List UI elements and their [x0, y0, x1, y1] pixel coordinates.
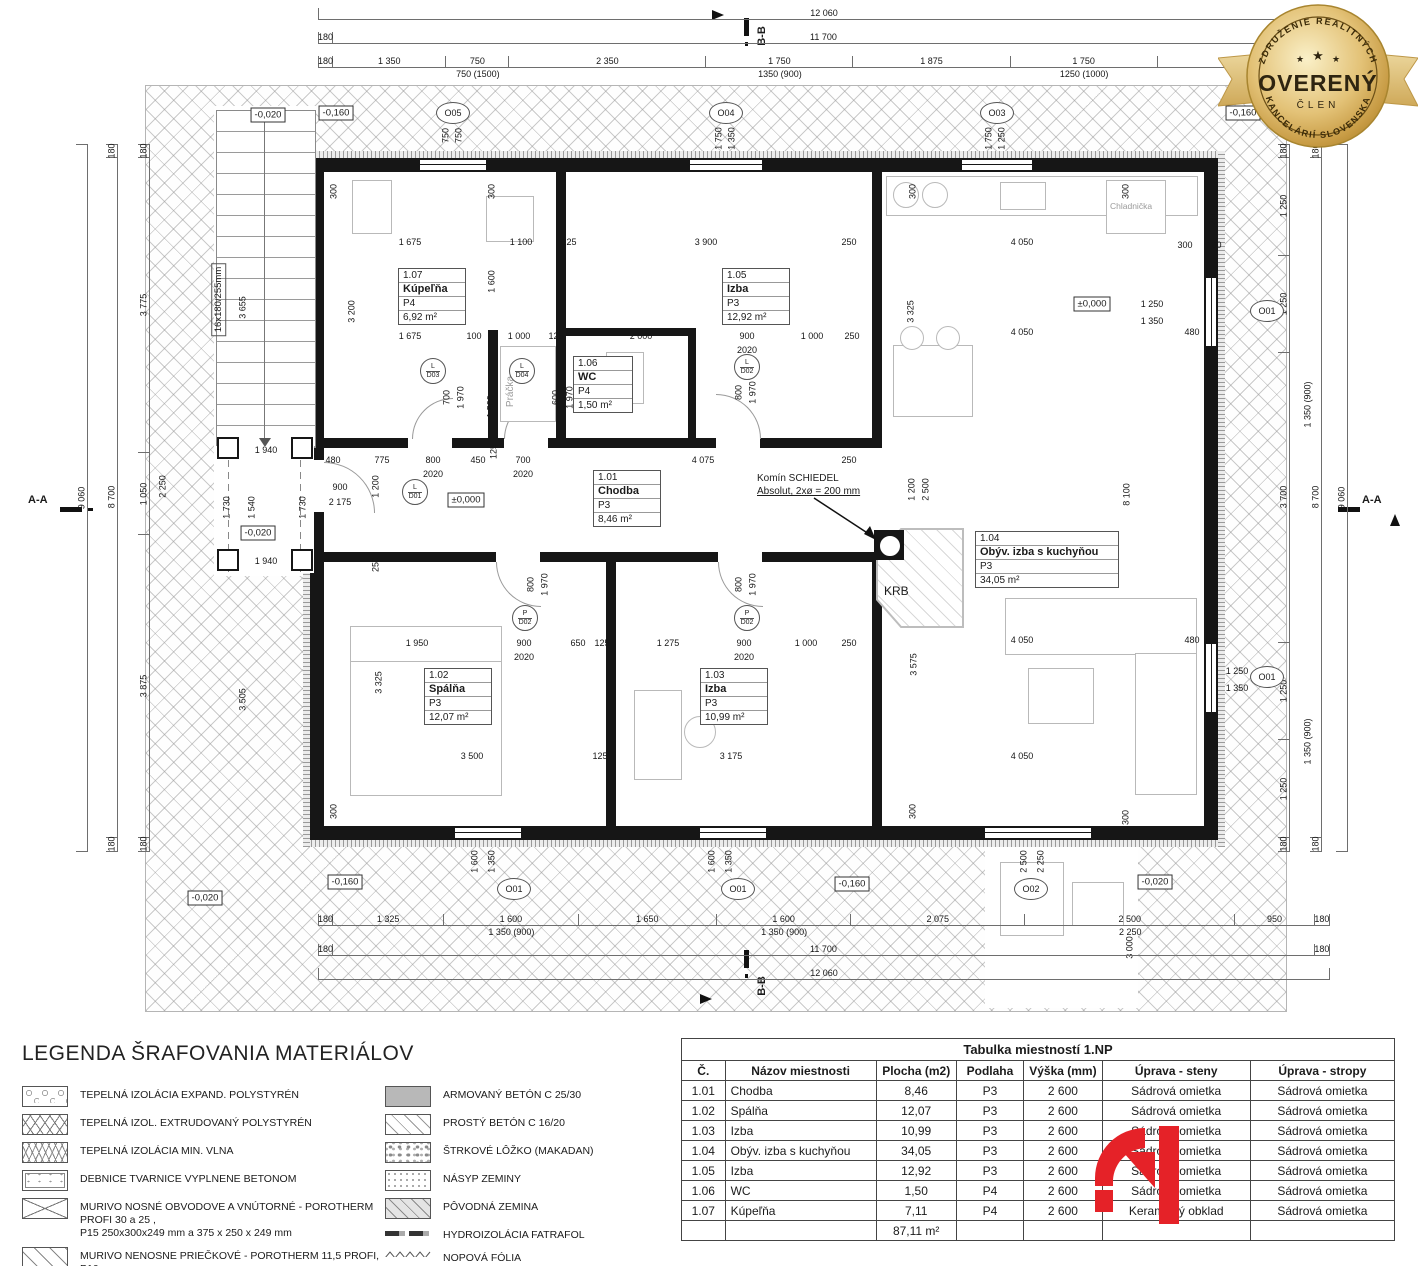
- table-cell: P4: [956, 1181, 1024, 1201]
- legend-item-label: NOPOVÁ FÓLIA: [443, 1249, 521, 1265]
- room-table-header: Úprava - stropy: [1250, 1061, 1394, 1081]
- door-tag-D02: PD02: [734, 605, 760, 631]
- badge-star-icon: ★: [1332, 54, 1340, 64]
- dimension-label: 125: [560, 751, 640, 762]
- legend-item: TEPELNÁ IZOLÁCIA EXPAND. POLYSTYRÉN: [22, 1086, 380, 1107]
- room-label-row: 1.07: [399, 269, 465, 283]
- dimension-label: 300: [329, 772, 340, 852]
- table-cell: 1.01: [682, 1081, 726, 1101]
- dimension-label: 8 100: [1122, 455, 1133, 535]
- room-label-row: P3: [425, 697, 491, 711]
- table-cell: 10,99: [876, 1121, 956, 1141]
- insulation-band: [303, 840, 1225, 847]
- door-swing-letter: L: [740, 359, 754, 368]
- door-opening: [408, 438, 452, 448]
- zigzag-line-icon: [385, 1249, 431, 1257]
- table-cell: 1.04: [682, 1141, 726, 1161]
- coffee-table: [1028, 668, 1094, 724]
- dimension-label: 3 575: [909, 625, 920, 705]
- desk: [634, 690, 682, 780]
- table-cell: Sádrová omietka: [1250, 1181, 1394, 1201]
- dimension-chain: 1803 7751 0503 875180: [138, 144, 150, 852]
- room-table-header: Úprava - steny: [1102, 1061, 1250, 1081]
- sofa: [1005, 598, 1197, 655]
- table-cell: 2 600: [1024, 1201, 1102, 1221]
- dimension-label: 300: [329, 152, 340, 232]
- table-cell: [1250, 1221, 1394, 1241]
- dimension-sub-label: 750 (1500): [456, 69, 500, 79]
- door-tag-D01: LD01: [402, 479, 428, 505]
- legend-item: MURIVO NOSNÉ OBVODOVE A VNÚTORNÉ - POROT…: [22, 1198, 380, 1240]
- table-cell: 12,92: [876, 1161, 956, 1181]
- room-label-row: 1.06: [574, 357, 632, 371]
- toilet: [352, 180, 392, 234]
- table-cell: Spálňa: [725, 1101, 876, 1121]
- dimension-label: 300: [1121, 152, 1132, 232]
- dimension-label: 300: [908, 152, 919, 232]
- legend-swatch-icon: [22, 1247, 68, 1266]
- dimension-label: 1 250: [1112, 299, 1192, 310]
- door-swing-letter: L: [515, 363, 529, 372]
- table-cell: 12,07: [876, 1101, 956, 1121]
- section-label-aa-right: A-A: [1362, 494, 1382, 506]
- room-label-row: 1.01: [594, 471, 660, 485]
- dimension-chain: 1801 3507502 3501 7501 8751 7501 875180: [318, 56, 1330, 68]
- table-total-row: 87,11 m²: [682, 1221, 1395, 1241]
- legend-swatch-icon: [385, 1170, 431, 1191]
- room-label-1.06: 1.06WCP41,50 m²: [573, 356, 633, 413]
- door-code: D03: [427, 372, 440, 380]
- legend-item: MURIVO NENOSNE PRIEČKOVÉ - POROTHERM 11,…: [22, 1247, 380, 1266]
- dimension-chain: 1801 2501 2503 7001 2501 250180: [1278, 144, 1290, 852]
- legend-item-label: TEPELNÁ IZOLÁCIA MIN. VLNA: [80, 1142, 233, 1158]
- dining-table: [893, 345, 973, 417]
- legend-swatch-icon: [385, 1086, 431, 1107]
- legend-item: ŠTRKOVÉ LÔŽKO (MAKADAN): [385, 1142, 685, 1163]
- table-cell: [956, 1221, 1024, 1241]
- table-cell: Sádrová omietka: [1102, 1081, 1250, 1101]
- legend-left-column: TEPELNÁ IZOLÁCIA EXPAND. POLYSTYRÉNTEPEL…: [22, 1086, 380, 1266]
- room-label-row: 1.03: [701, 669, 767, 683]
- dimension-chain: 18011 700180: [318, 32, 1330, 44]
- table-cell: Sádrová omietka: [1250, 1101, 1394, 1121]
- dimension-sub-label: 1 350 (900): [488, 927, 534, 937]
- room-label-row: P3: [594, 499, 660, 513]
- table-row: 1.07Kúpeľňa7,11P42 600Keramický obkladSá…: [682, 1201, 1395, 1221]
- table-cell: 7,11: [876, 1201, 956, 1221]
- table-cell: 87,11 m²: [876, 1221, 956, 1241]
- door-code: D02: [519, 619, 532, 627]
- hob-burner: [922, 182, 948, 208]
- legend-swatch-icon: [22, 1170, 68, 1191]
- insulation-band: [1218, 151, 1225, 847]
- dimension-label: 1 600: [470, 822, 481, 902]
- chimney-arrow: [806, 492, 886, 552]
- level-marker: -0,020: [1138, 875, 1173, 890]
- exterior-stairs: [216, 110, 316, 448]
- dimension-label: 1 200: [371, 447, 382, 527]
- dimension-label: 1 275: [628, 638, 708, 649]
- legend-item-label: ARMOVANÝ BETÓN C 25/30: [443, 1086, 581, 1102]
- legend-item: PROSTÝ BETÓN C 16/20: [385, 1114, 685, 1135]
- dimension-label: 480: [1152, 327, 1232, 338]
- dimension-label: 900: [300, 482, 380, 493]
- window-tag-O04: O04: [709, 102, 743, 124]
- room-label-1.03: 1.03IzbaP310,99 m²: [700, 668, 768, 725]
- level-marker: -0,160: [328, 875, 363, 890]
- legend-item-label: PÔVODNÁ ZEMINA: [443, 1198, 538, 1214]
- badge-main-text: OVERENÝ: [1258, 69, 1377, 96]
- dimension-label: 3 325: [374, 643, 385, 723]
- window-tag-O03: O03: [980, 102, 1014, 124]
- table-cell: Chodba: [725, 1081, 876, 1101]
- section-dash: [88, 508, 93, 511]
- table-cell: Sádrová omietka: [1250, 1081, 1394, 1101]
- room-label-row: P3: [976, 560, 1118, 574]
- table-cell: 2 600: [1024, 1121, 1102, 1141]
- table-cell: Sádrová omietka: [1250, 1121, 1394, 1141]
- fireplace-label: KRB: [884, 585, 909, 598]
- room-label-1.05: 1.05IzbaP312,92 m²: [722, 268, 790, 325]
- table-cell: 1.02: [682, 1101, 726, 1121]
- legend: LEGENDA ŠRAFOVANIA MATERIÁLOV TEPELNÁ IZ…: [22, 1042, 682, 1257]
- dimension-label: 2020: [393, 469, 473, 480]
- legend-item-label: MURIVO NOSNÉ OBVODOVE A VNÚTORNÉ - POROT…: [80, 1198, 380, 1240]
- room-label-row: Izba: [701, 683, 767, 697]
- agency-logo-watermark: [1093, 1126, 1193, 1228]
- dimension-label: 300: [908, 772, 919, 852]
- table-cell: 1.05: [682, 1161, 726, 1181]
- room-label-row: 6,92 m²: [399, 311, 465, 324]
- legend-item-label: DEBNICE TVARNICE VYPLNENE BETONOM: [80, 1170, 296, 1186]
- dimension-label: 600: [551, 358, 562, 438]
- dimension-label: 1 950: [377, 638, 457, 649]
- room-label-row: 10,99 m²: [701, 711, 767, 724]
- table-cell: Sádrová omietka: [1250, 1161, 1394, 1181]
- room-table-header: Názov miestnosti: [725, 1061, 876, 1081]
- room-label-row: 12,92 m²: [723, 311, 789, 324]
- stairs-spec-label: 16x180/255mm: [211, 263, 226, 336]
- door-swing-letter: L: [426, 363, 440, 372]
- door-tag-D04: LD04: [509, 358, 535, 384]
- dimension-label: 4 075: [663, 455, 743, 466]
- room-label-row: Chodba: [594, 485, 660, 499]
- dimension-chain: 1808 700180: [106, 144, 118, 852]
- table-cell: 1.03: [682, 1121, 726, 1141]
- dimension-label: 1 350: [487, 822, 498, 902]
- dimension-chain: 12 060: [318, 8, 1330, 20]
- door-code: D01: [409, 493, 422, 501]
- dimension-label: 4 050: [982, 237, 1062, 248]
- dimension-label: 1 350: [1112, 316, 1192, 327]
- table-cell: 2 600: [1024, 1081, 1102, 1101]
- badge-star-icon: ★: [1296, 54, 1304, 64]
- dimension-label: 125: [516, 331, 596, 342]
- door-code: D04: [516, 372, 529, 380]
- window-tag-O01: O01: [721, 878, 755, 900]
- door-swing-letter: P: [518, 610, 532, 619]
- dimension-label: 250: [812, 331, 892, 342]
- window-tag-O01: O01: [497, 878, 531, 900]
- legend-swatch-icon: [385, 1142, 431, 1163]
- dimension-label: 2020: [483, 469, 563, 480]
- room-label-row: P4: [399, 297, 465, 311]
- dimension-label: 3 900: [666, 237, 746, 248]
- floor-plan-sheet: KRB Komín SCHIEDEL Absolut, 2xø = 200 mm…: [0, 0, 1426, 1266]
- section-arrow-bb-bottom: [700, 994, 712, 1004]
- room-table-header: Podlaha: [956, 1061, 1024, 1081]
- legend-swatch-icon: [385, 1198, 431, 1219]
- dimension-label: 4 050: [982, 635, 1062, 646]
- dimension-label: 2020: [704, 652, 784, 663]
- room-label-row: 34,05 m²: [976, 574, 1118, 587]
- dimension-label: 2 000: [601, 331, 681, 342]
- dimension-chain: 9 060: [1336, 144, 1348, 852]
- room-label-row: 1.02: [425, 669, 491, 683]
- level-marker: -0,160: [319, 106, 354, 121]
- table-cell: Sádrová omietka: [1250, 1201, 1394, 1221]
- level-marker: ±0,000: [1074, 297, 1111, 312]
- room-label-row: 8,46 m²: [594, 513, 660, 526]
- legend-item-label: PROSTÝ BETÓN C 16/20: [443, 1114, 565, 1130]
- room-label-row: Spálňa: [425, 683, 491, 697]
- legend-item-label: NÁSYP ZEMINY: [443, 1170, 521, 1186]
- table-cell: [682, 1221, 726, 1241]
- chimney-note-line1: Komín SCHIEDEL: [757, 472, 860, 485]
- room-label-row: Obýv. izba s kuchyňou: [976, 546, 1118, 560]
- dimension-label: 480: [1152, 635, 1232, 646]
- legend-item: PÔVODNÁ ZEMINA: [385, 1198, 685, 1219]
- legend-swatch-icon: [22, 1198, 68, 1219]
- table-cell: P4: [956, 1201, 1024, 1221]
- legend-item-label: ŠTRKOVÉ LÔŽKO (MAKADAN): [443, 1142, 594, 1158]
- room-label-row: P4: [574, 385, 632, 399]
- room-label-1.07: 1.07KúpeľňaP46,92 m²: [398, 268, 466, 325]
- table-cell: Izba: [725, 1121, 876, 1141]
- dimension-sub-label: 1250 (1000): [1060, 69, 1109, 79]
- dimension-label: 300: [487, 152, 498, 232]
- dimension-label: 1 940: [226, 556, 306, 567]
- room-table-header: Č.: [682, 1061, 726, 1081]
- dimension-label: 1 250: [1208, 182, 1219, 262]
- dimension-label: 125: [529, 237, 609, 248]
- door-swing-letter: L: [408, 484, 422, 493]
- table-row: 1.05Izba12,92P32 600Sádrová omietkaSádro…: [682, 1161, 1395, 1181]
- dashed-line-icon: [385, 1231, 431, 1236]
- table-cell: 2 600: [1024, 1181, 1102, 1201]
- table-cell: 1.06: [682, 1181, 726, 1201]
- table-cell: 2 600: [1024, 1141, 1102, 1161]
- door-tag-D03: LD03: [420, 358, 446, 384]
- section-arrow-aa-right: [1390, 514, 1400, 526]
- table-cell: P3: [956, 1121, 1024, 1141]
- dimension-label: 250: [809, 638, 889, 649]
- table-cell: 34,05: [876, 1141, 956, 1161]
- legend-item-label: TEPELNÁ IZOLÁCIA EXPAND. POLYSTYRÉN: [80, 1086, 299, 1102]
- legend-swatch-icon: [385, 1114, 431, 1135]
- table-cell: 1,50: [876, 1181, 956, 1201]
- dimension-sub-label: 2 250: [1119, 927, 1142, 937]
- section-label-aa-left: A-A: [28, 494, 48, 506]
- dimension-label: 1 600: [487, 242, 498, 322]
- window-tag-O05: O05: [436, 102, 470, 124]
- door-tag-D02: PD02: [512, 605, 538, 631]
- room-label-row: WC: [574, 371, 632, 385]
- dimension-label: 3 655: [238, 268, 249, 348]
- table-cell: P3: [956, 1161, 1024, 1181]
- dimension-label: 1 730: [222, 468, 233, 548]
- dimension-label: 1 730: [298, 468, 309, 548]
- dimension-label: 2020: [484, 652, 564, 663]
- legend-right-column: ARMOVANÝ BETÓN C 25/30PROSTÝ BETÓN C 16/…: [385, 1086, 685, 1266]
- table-cell: [725, 1221, 876, 1241]
- room-label-row: 1.05: [723, 269, 789, 283]
- table-cell: [1024, 1221, 1102, 1241]
- verified-member-badge: ZDRUŽENIE REALITNÝCH KANCELÁRIÍ SLOVENSK…: [1218, 2, 1418, 152]
- table-cell: Obýv. izba s kuchyňou: [725, 1141, 876, 1161]
- table-cell: Izba: [725, 1161, 876, 1181]
- table-cell: P3: [956, 1101, 1024, 1121]
- chair: [936, 326, 960, 350]
- dimension-label: 3 505: [238, 660, 249, 740]
- room-label-1.01: 1.01ChodbaP38,46 m²: [593, 470, 661, 527]
- window-O01-right-bottom: [1204, 644, 1218, 712]
- dimension-label: 4 050: [982, 751, 1062, 762]
- door-swing-letter: P: [740, 610, 754, 619]
- legend-line-item: HYDROIZOLÁCIA FATRAFOL: [385, 1226, 685, 1242]
- room-label-1.02: 1.02SpálňaP312,07 m²: [424, 668, 492, 725]
- table-cell: 1.07: [682, 1201, 726, 1221]
- table-cell: 2 600: [1024, 1101, 1102, 1121]
- dimension-sub-label: 1 350 (900): [761, 927, 807, 937]
- level-marker: ±0,000: [448, 493, 485, 508]
- dimension-chain: 1801 3251 6001 6501 6002 0752 500950180: [318, 914, 1330, 926]
- dimension-label: 3 175: [691, 751, 771, 762]
- dimension-label: 1 600: [707, 822, 718, 902]
- dimension-label: 250: [809, 455, 889, 466]
- room-label-1.04: 1.04Obýv. izba s kuchyňouP334,05 m²: [975, 531, 1119, 588]
- floor-plan: KRB Komín SCHIEDEL Absolut, 2xø = 200 mm…: [0, 0, 1426, 1030]
- dimension-chain: 1808 700180: [1310, 144, 1322, 852]
- table-cell: Sádrová omietka: [1250, 1141, 1394, 1161]
- table-cell: Kúpeľňa: [725, 1201, 876, 1221]
- window-tag-O01: O01: [1250, 300, 1284, 322]
- legend-item: DEBNICE TVARNICE VYPLNENE BETONOM: [22, 1170, 380, 1191]
- dimension-label: 3 200: [347, 272, 358, 352]
- table-cell: P3: [956, 1141, 1024, 1161]
- table-row: 1.01Chodba8,46P32 600Sádrová omietkaSádr…: [682, 1081, 1395, 1101]
- level-marker: -0,020: [251, 108, 286, 123]
- room-table-header: Plocha (m2): [876, 1061, 956, 1081]
- level-marker: -0,020: [241, 526, 276, 541]
- room-label-row: Kúpeľňa: [399, 283, 465, 297]
- door-code: D02: [741, 619, 754, 627]
- dimension-chain: 9 060: [76, 144, 88, 852]
- badge-star-icon: ★: [1312, 48, 1324, 63]
- dimension-label: 700: [483, 455, 563, 466]
- wall-corridor-bottom: [324, 552, 880, 562]
- dimension-label: 250: [371, 525, 382, 605]
- table-row: 1.02Spálňa12,07P32 600Sádrová omietkaSád…: [682, 1101, 1395, 1121]
- legend-item-label: MURIVO NENOSNE PRIEČKOVÉ - POROTHERM 11,…: [80, 1247, 380, 1266]
- table-cell: 8,46: [876, 1081, 956, 1101]
- room-label-row: P3: [723, 297, 789, 311]
- room-table-header: Výška (mm): [1024, 1061, 1102, 1081]
- legend-item: NÁSYP ZEMINY: [385, 1170, 685, 1191]
- badge-sub-text: ČLEN: [1297, 98, 1340, 111]
- room-label-row: 1,50 m²: [574, 399, 632, 412]
- dimension-label: 1 940: [226, 445, 306, 456]
- dimension-label: 1 970: [540, 545, 551, 625]
- room-label-row: 1.04: [976, 532, 1118, 546]
- dimension-sub-label: 1350 (900): [758, 69, 802, 79]
- dimension-label: 250: [809, 237, 889, 248]
- window-tag-O02: O02: [1014, 878, 1048, 900]
- dimension-chain: 12 060: [318, 968, 1330, 980]
- dimension-label: 1 250: [1208, 728, 1219, 808]
- legend-item: ARMOVANÝ BETÓN C 25/30: [385, 1086, 685, 1107]
- window-tag-O01: O01: [1250, 666, 1284, 688]
- room-label-row: Izba: [723, 283, 789, 297]
- dimension-label: 2 500: [921, 450, 932, 530]
- table-cell: 2 600: [1024, 1161, 1102, 1181]
- table-row: 1.06WC1,50P42 600Sádrová omietkaSádrová …: [682, 1181, 1395, 1201]
- legend-item: TEPELNÁ IZOLÁCIA MIN. VLNA: [22, 1142, 380, 1163]
- stairs-centerline: [264, 112, 265, 442]
- table-cell: WC: [725, 1181, 876, 1201]
- legend-item: TEPELNÁ IZOL. EXTRUDOVANÝ POLYSTYRÉN: [22, 1114, 380, 1135]
- legend-title: LEGENDA ŠRAFOVANIA MATERIÁLOV: [22, 1042, 682, 1066]
- dimension-label: 3 500: [432, 751, 512, 762]
- door-opening: [504, 438, 548, 448]
- legend-swatch-icon: [22, 1114, 68, 1135]
- dimension-label: 1 200: [907, 450, 918, 530]
- table-row: 1.03Izba10,99P32 600Sádrová omietkaSádro…: [682, 1121, 1395, 1141]
- legend-swatch-icon: [22, 1142, 68, 1163]
- legend-swatch-icon: [22, 1086, 68, 1107]
- dimension-label: 4 050: [982, 327, 1062, 338]
- dimension-label: 2 250: [158, 447, 169, 527]
- wall-wc-right: [688, 328, 696, 448]
- table-row: 1.04Obýv. izba s kuchyňou34,05P32 600Sád…: [682, 1141, 1395, 1161]
- legend-item-label: TEPELNÁ IZOL. EXTRUDOVANÝ POLYSTYRÉN: [80, 1114, 312, 1130]
- dimension-label: 300: [1121, 778, 1132, 858]
- level-marker: -0,160: [835, 877, 870, 892]
- legend-line-item: NOPOVÁ FÓLIA: [385, 1249, 685, 1265]
- level-marker: -0,020: [188, 891, 223, 906]
- door-opening: [716, 438, 760, 448]
- kitchen-sink: [1000, 182, 1046, 210]
- room-table-title: Tabulka miestností 1.NP: [682, 1039, 1395, 1061]
- table-cell: P3: [956, 1081, 1024, 1101]
- wall-living-left-upper: [872, 172, 882, 448]
- door-code: D02: [741, 368, 754, 376]
- dimension-label: 1 970: [456, 358, 467, 438]
- room-label-row: P3: [701, 697, 767, 711]
- dimension-label: 3 325: [906, 272, 917, 352]
- door-tag-D02: LD02: [734, 354, 760, 380]
- table-cell: Sádrová omietka: [1102, 1101, 1250, 1121]
- sofa: [1135, 653, 1197, 795]
- room-label-row: 12,07 m²: [425, 711, 491, 724]
- legend-item-label: HYDROIZOLÁCIA FATRAFOL: [443, 1226, 585, 1242]
- dimension-label: 2 175: [300, 497, 380, 508]
- room-table: Tabulka miestností 1.NPČ.Názov miestnost…: [681, 1038, 1395, 1241]
- dimension-label: 1 675: [370, 237, 450, 248]
- dimension-chain: 18011 700180: [318, 944, 1330, 956]
- wall-bedroom-divider: [606, 562, 616, 826]
